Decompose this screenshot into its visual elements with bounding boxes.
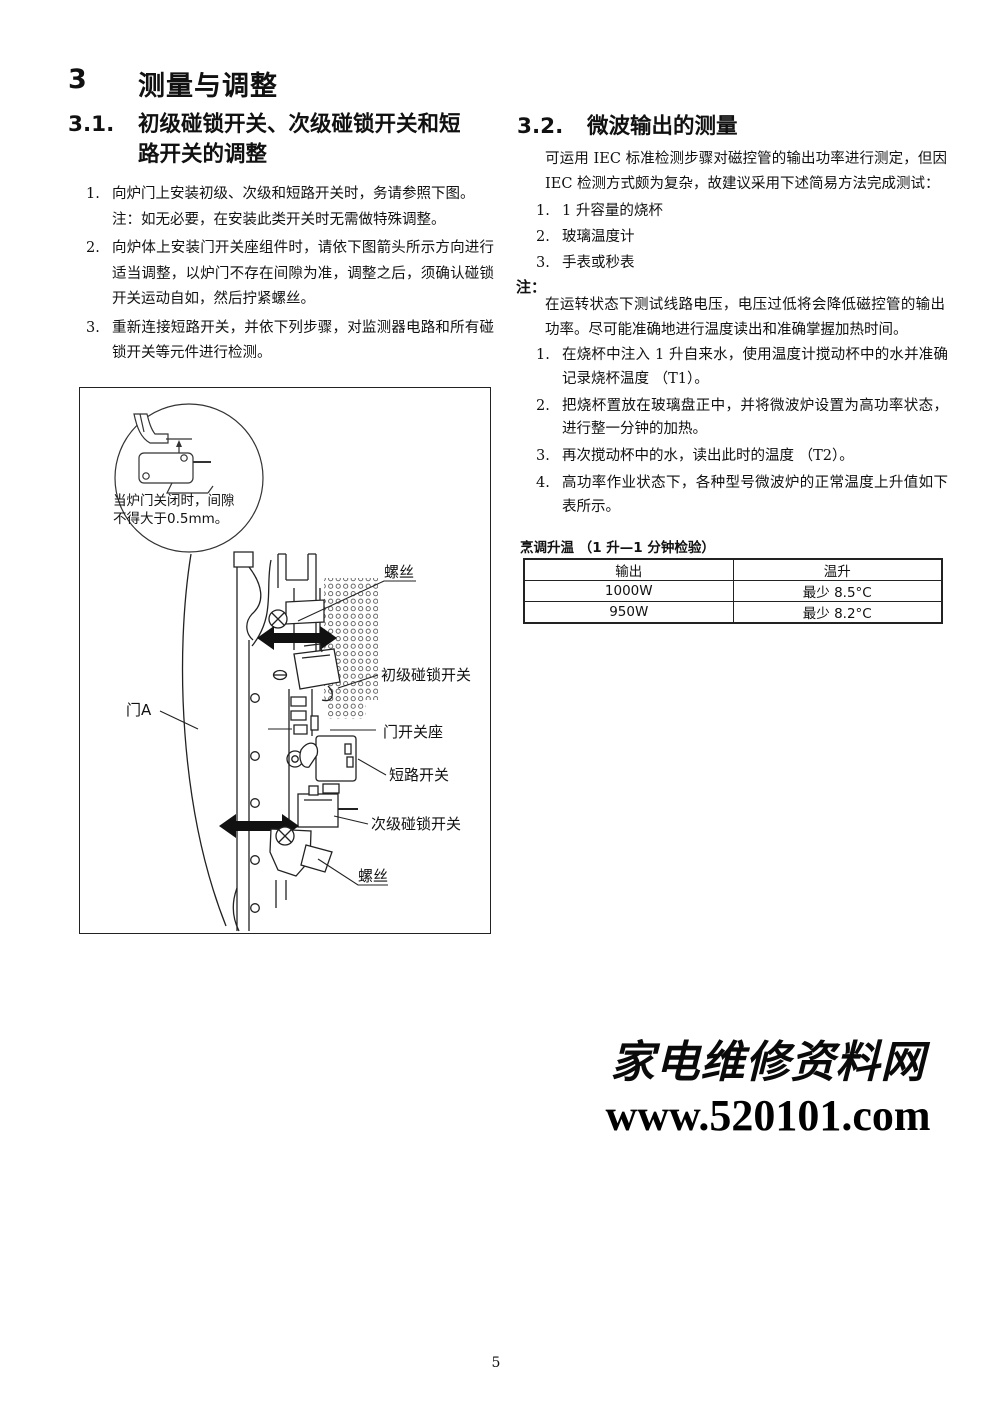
list-item: 3. 手表或秒表 (536, 252, 946, 276)
door-hole (251, 752, 260, 761)
item-number: 4. (536, 472, 562, 520)
section-3-2-intro: 可运用 IEC 标准检测步骤对磁控管的输出功率进行测定，但因 IEC 检测方式颇… (545, 147, 947, 196)
door-edge-bump (247, 567, 261, 640)
item-text: 再次搅动杯中的水，读出此时的温度 （T2）。 (562, 445, 948, 469)
cell-output: 950W (524, 602, 733, 624)
label-door-switch-holder: 门开关座 (383, 723, 443, 741)
page-title: 3 测量与调整 (68, 64, 278, 103)
heading-line: 初级碰锁开关、次级碰锁开关和短 (138, 110, 461, 140)
temperature-rise-table: 输出 温升 1000W 最少 8.5°C 950W 最少 8.2°C (523, 558, 943, 624)
item-number: 2. (536, 395, 562, 443)
item-number: 1. (536, 200, 562, 224)
item-text: 在烧杯中注入 1 升自来水，使用温度计搅动杯中的水并准确记录烧杯温度 （T1）。 (562, 344, 948, 392)
service-manual-page: 3 测量与调整 3.1. 初级碰锁开关、次级碰锁开关和短 路开关的调整 1. 向… (0, 0, 992, 1404)
item-text: 把烧杯置放在玻璃盘正中，并将微波炉设置为高功率状态，进行整一分钟的加热。 (562, 395, 948, 443)
item-text: 向炉体上安装门开关座组件时，请依下图箭头所示方向进行适当调整，以炉门不存在间隙为… (112, 236, 494, 313)
inset-detail-circle: 当炉门关闭时，间隙 不得大于0.5mm。 (113, 404, 263, 552)
short-circuit-switch-graphic (287, 736, 356, 793)
leader-short-circuit (358, 759, 386, 775)
section-3-2-heading: 3.2. 微波输出的测量 (517, 112, 957, 142)
note-label: 注： (516, 276, 546, 297)
list-item: 4. 高功率作业状态下，各种型号微波炉的正常温度上升值如下表所示。 (536, 472, 948, 520)
section-3-2-title: 微波输出的测量 (587, 112, 738, 142)
table-header-row: 输出 温升 (524, 559, 942, 581)
list-item: 3. 再次搅动杯中的水，读出此时的温度 （T2）。 (536, 445, 948, 469)
item-line: 向炉门上安装初级、次级和短路开关时，务请参照下图。 (112, 182, 494, 208)
item-number: 3. (536, 252, 562, 276)
list-item: 2. 玻璃温度计 (536, 226, 946, 250)
screw-bottom-graphic (276, 827, 294, 845)
door-edge-cap (234, 552, 253, 567)
chapter-number: 3 (68, 64, 138, 103)
inset-caption-line2: 不得大于0.5mm。 (113, 510, 228, 527)
table-row: 950W 最少 8.2°C (524, 602, 942, 624)
list-item: 3. 重新连接短路开关，并依下列步骤，对监测器电路和所有碰锁开关等元件进行检测。 (86, 316, 494, 367)
perforated-panel-lower (326, 700, 366, 719)
latch-oval-hole (274, 671, 287, 680)
item-text: 向炉门上安装初级、次级和短路开关时，务请参照下图。 注：如无必要，在安装此类开关… (112, 182, 494, 233)
latch-adjustment-figure: 当炉门关闭时，间隙 不得大于0.5mm。 (79, 387, 491, 934)
table-caption: 烹调升温 （1 升—1 分钟检验） (520, 536, 715, 556)
screw-top-graphic (269, 610, 287, 628)
list-item: 2. 把烧杯置放在玻璃盘正中，并将微波炉设置为高功率状态，进行整一分钟的加热。 (536, 395, 948, 443)
section-3-1-title: 初级碰锁开关、次级碰锁开关和短 路开关的调整 (138, 110, 461, 170)
door-hole (251, 799, 260, 808)
table-row: 1000W 最少 8.5°C (524, 581, 942, 602)
item-text: 高功率作业状态下，各种型号微波炉的正常温度上升值如下表所示。 (562, 472, 948, 520)
page-number: 5 (0, 1355, 992, 1371)
label-screw-bottom: 螺丝 (358, 867, 388, 885)
item-number: 3. (86, 316, 112, 367)
door-assembly-art (183, 552, 378, 931)
cell-rise: 最少 8.2°C (733, 602, 942, 624)
col-header-output: 输出 (524, 559, 733, 581)
adjust-arrow-upper (257, 626, 337, 650)
note-text: 在运转状态下测试线路电压，电压过低将会降低磁控管的输出功率。尽可能准确地进行温度… (545, 293, 945, 342)
inset-caption-line1: 当炉门关闭时，间隙 (113, 493, 235, 509)
list-item: 2. 向炉体上安装门开关座组件时，请依下图箭头所示方向进行适当调整，以炉门不存在… (86, 236, 494, 313)
label-screw-top: 螺丝 (384, 563, 414, 581)
cell-output: 1000W (524, 581, 733, 602)
section-3-1-heading: 3.1. 初级碰锁开关、次级碰锁开关和短 路开关的调整 (68, 110, 508, 170)
list-item: 1. 1 升容量的烧杯 (536, 200, 946, 224)
leader-secondary-latch (334, 816, 368, 824)
label-secondary-latch-switch: 次级碰锁开关 (371, 815, 461, 833)
secondary-latch-switch-graphic (298, 786, 358, 827)
list-item: 1. 向炉门上安装初级、次级和短路开关时，务请参照下图。 注：如无必要，在安装此… (86, 182, 494, 233)
switch-bracket (167, 483, 213, 493)
latch-diagram-svg: 当炉门关闭时，间隙 不得大于0.5mm。 (80, 388, 490, 933)
list-item: 1. 在烧杯中注入 1 升自来水，使用温度计搅动杯中的水并准确记录烧杯温度 （T… (536, 344, 948, 392)
item-number: 2. (536, 226, 562, 250)
item-number: 2. (86, 236, 112, 313)
item-text: 手表或秒表 (562, 252, 946, 276)
col-header-rise: 温升 (733, 559, 942, 581)
tools-list: 1. 1 升容量的烧杯 2. 玻璃温度计 3. 手表或秒表 (536, 200, 946, 278)
leader-door-a (160, 711, 198, 729)
item-number: 1. (536, 344, 562, 392)
label-door-a: 门A (126, 701, 152, 719)
item-number: 1. (86, 182, 112, 233)
item-note: 注：如无必要，在安装此类开关时无需做特殊调整。 (112, 208, 494, 234)
door-a-curve (183, 554, 226, 926)
item-text: 玻璃温度计 (562, 226, 946, 250)
section-3-1-list: 1. 向炉门上安装初级、次级和短路开关时，务请参照下图。 注：如无必要，在安装此… (86, 182, 494, 370)
door-hook (134, 414, 168, 443)
watermark-site-name: 家电维修资料网 (598, 1026, 938, 1090)
section-3-2-number: 3.2. (517, 112, 587, 142)
label-primary-latch-switch: 初级碰锁开关 (381, 666, 471, 684)
heading-line: 路开关的调整 (138, 140, 461, 170)
section-3-1-number: 3.1. (68, 110, 138, 170)
item-text: 重新连接短路开关，并依下列步骤，对监测器电路和所有碰锁开关等元件进行检测。 (112, 316, 494, 367)
label-short-circuit-switch: 短路开关 (389, 766, 449, 784)
watermark-url: www.520101.com (598, 1090, 938, 1141)
door-hole (251, 856, 260, 865)
item-text: 1 升容量的烧杯 (562, 200, 946, 224)
door-hole (251, 694, 260, 703)
door-hole (251, 904, 260, 913)
steps-list: 1. 在烧杯中注入 1 升自来水，使用温度计搅动杯中的水并准确记录烧杯温度 （T… (536, 344, 948, 523)
leader-door-switch-holder (268, 729, 376, 730)
cell-rise: 最少 8.5°C (733, 581, 942, 602)
watermark: 家电维修资料网 www.520101.com (598, 1026, 938, 1141)
door-foot-line (233, 888, 239, 931)
microswitch (139, 453, 213, 493)
item-number: 3. (536, 445, 562, 469)
chapter-title-text: 测量与调整 (138, 64, 278, 103)
